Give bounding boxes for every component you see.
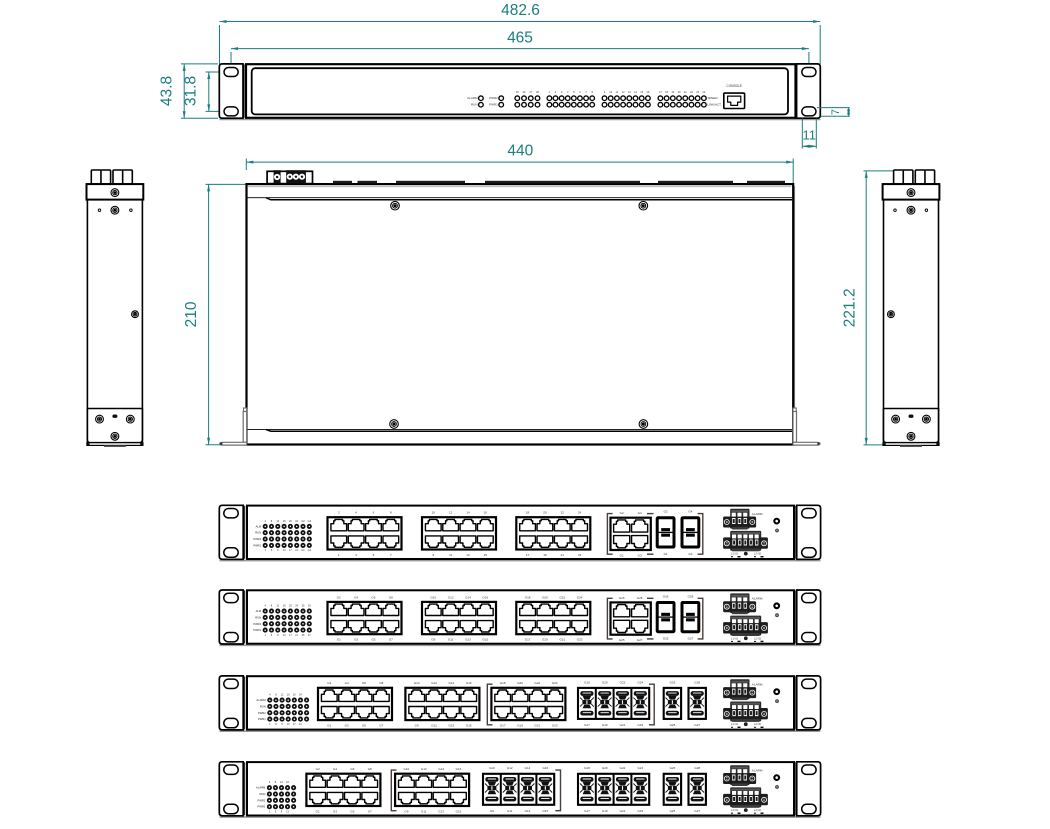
svg-text:G4: G4 [354,595,358,599]
svg-text:G17: G17 [584,723,590,727]
svg-text:G3: G3 [688,552,692,556]
svg-text:G3: G3 [308,549,312,552]
svg-text:G14: G14 [525,766,531,770]
svg-text:11: 11 [449,553,452,557]
svg-text:RUN: RUN [260,704,266,708]
svg-text:G27: G27 [694,809,700,813]
svg-text:G6: G6 [371,595,375,599]
svg-text:G13: G13 [438,809,444,813]
svg-text:PWR1: PWR1 [489,103,498,107]
svg-text:L2 N2: L2 N2 [754,636,761,640]
svg-text:24: 24 [578,511,582,515]
svg-text:RUN: RUN [255,531,261,535]
svg-text:G25: G25 [619,638,625,642]
svg-text:ALARM: ALARM [752,683,763,687]
svg-text:RUN: RUN [259,792,265,796]
svg-text:G19: G19 [602,809,608,813]
svg-text:G4: G4 [638,511,642,515]
svg-text:G20: G20 [517,681,523,685]
svg-text:10: 10 [432,511,436,515]
svg-text:G18: G18 [525,595,531,599]
svg-text:RUN: RUN [255,615,261,619]
svg-text:G5: G5 [371,638,375,642]
svg-text:G18: G18 [584,766,590,770]
svg-text:ALARM: ALARM [752,597,763,601]
svg-text:G3: G3 [345,723,349,727]
svg-text:G27: G27 [688,637,694,641]
svg-text:G10: G10 [489,766,495,770]
svg-text:43.8: 43.8 [159,76,176,106]
svg-text:G17: G17 [525,638,531,642]
svg-text:G7: G7 [379,723,383,727]
svg-text:G6: G6 [362,681,366,685]
svg-text:15: 15 [484,553,488,557]
svg-text:G22: G22 [620,766,626,770]
svg-text:G16: G16 [466,681,472,685]
svg-text:G28: G28 [688,594,694,598]
svg-text:G18: G18 [584,680,590,684]
svg-text:G19: G19 [602,723,608,727]
svg-text:G4: G4 [333,767,337,771]
svg-text:G1: G1 [620,553,624,557]
svg-text:G1: G1 [337,638,341,642]
svg-text:G28: G28 [694,766,700,770]
svg-text:G1: G1 [316,809,320,813]
svg-text:G24: G24 [577,595,583,599]
svg-text:G25: G25 [670,723,676,727]
svg-text:G26: G26 [670,680,676,684]
svg-text:482.6: 482.6 [501,2,540,19]
svg-text:G25: G25 [663,637,669,641]
svg-text:L1 N1: L1 N1 [731,808,738,812]
svg-text:G21: G21 [620,809,626,813]
svg-text:G11: G11 [448,638,454,642]
svg-text:G15: G15 [466,723,472,727]
svg-text:G16: G16 [542,766,548,770]
svg-text:G21: G21 [620,723,626,727]
svg-text:14: 14 [466,511,470,515]
svg-text:G14: G14 [449,681,455,685]
svg-text:G2: G2 [620,511,624,515]
svg-text:G22: G22 [620,680,626,684]
svg-text:G13: G13 [525,809,531,813]
svg-text:19: 19 [543,553,547,557]
svg-text:G12: G12 [507,766,513,770]
svg-text:G9: G9 [431,638,435,642]
svg-text:G17: G17 [584,809,590,813]
svg-text:G8: G8 [368,767,372,771]
svg-text:PWR2: PWR2 [253,537,261,541]
svg-text:ALARM: ALARM [256,786,266,790]
svg-text:17: 17 [526,553,530,557]
svg-text:ALARM: ALARM [467,96,478,100]
svg-text:L2 N2: L2 N2 [754,808,761,812]
svg-text:G16: G16 [456,767,462,771]
svg-text:G13: G13 [449,723,455,727]
svg-text:465: 465 [507,30,533,47]
svg-text:G5: G5 [362,723,366,727]
svg-text:G15: G15 [542,809,548,813]
svg-text:PWR2: PWR2 [489,96,498,100]
svg-text:L2 N2: L2 N2 [754,552,761,556]
svg-text:G27: G27 [694,723,700,727]
svg-text:G26: G26 [619,596,625,600]
svg-text:PWR1: PWR1 [258,717,266,721]
svg-text:G15: G15 [456,809,462,813]
svg-text:G2: G2 [337,595,341,599]
svg-text:G7: G7 [368,809,372,813]
svg-text:G13: G13 [465,638,471,642]
svg-text:G2: G2 [664,510,668,514]
svg-text:G7: G7 [389,638,393,642]
svg-text:G26: G26 [670,766,676,770]
svg-text:G3: G3 [354,638,358,642]
svg-text:L1 N1: L1 N1 [731,636,738,640]
svg-text:G19: G19 [517,723,523,727]
svg-text:G2: G2 [327,681,331,685]
svg-text:SPEED: SPEED [708,96,719,100]
svg-text:23: 23 [578,553,582,557]
svg-text:G4: G4 [688,510,692,514]
svg-text:G23: G23 [577,638,583,642]
svg-text:G25: G25 [670,809,676,813]
svg-text:G20: G20 [602,766,608,770]
svg-text:11: 11 [803,128,817,143]
svg-text:G11: G11 [431,723,437,727]
svg-text:G8: G8 [389,595,393,599]
svg-text:G14: G14 [465,595,471,599]
svg-text:G22: G22 [535,681,541,685]
svg-text:G3: G3 [333,809,337,813]
svg-text:31.8: 31.8 [183,76,200,106]
svg-text:ALARM: ALARM [752,512,763,516]
svg-text:G14: G14 [438,767,444,771]
svg-text:G12: G12 [431,681,437,685]
svg-text:ALM: ALM [256,609,262,613]
svg-text:PWR2: PWR2 [258,798,266,802]
svg-text:G2: G2 [316,767,320,771]
svg-text:G15: G15 [482,638,488,642]
svg-text:G24: G24 [637,680,643,684]
svg-text:LINK/ACT: LINK/ACT [708,103,722,107]
svg-text:G12: G12 [421,767,427,771]
svg-text:G8: G8 [379,681,383,685]
svg-text:20: 20 [543,511,547,515]
svg-text:L1 N1: L1 N1 [731,552,738,556]
svg-text:PWR2: PWR2 [253,622,261,626]
svg-text:210: 210 [183,301,200,327]
svg-text:18: 18 [526,511,530,515]
svg-text:PWR1: PWR1 [258,805,266,809]
svg-text:G16: G16 [482,595,488,599]
svg-text:G12: G12 [448,595,454,599]
svg-text:G21: G21 [559,638,565,642]
svg-text:G6: G6 [350,767,354,771]
svg-text:PWR1: PWR1 [253,543,261,547]
svg-text:PWR2: PWR2 [258,711,266,715]
svg-text:G28: G28 [637,596,643,600]
svg-text:G10: G10 [404,767,410,771]
svg-text:G28: G28 [694,680,700,684]
svg-text:G9: G9 [404,809,408,813]
svg-text:G20: G20 [542,595,548,599]
svg-text:G3: G3 [638,553,642,557]
svg-text:13: 13 [466,553,470,557]
svg-text:G17: G17 [500,723,506,727]
svg-text:7: 7 [830,109,842,115]
svg-text:L1 N1: L1 N1 [731,722,738,726]
svg-text:CONSOLE: CONSOLE [726,84,742,88]
svg-text:ALARM: ALARM [256,698,266,702]
svg-text:L2 N2: L2 N2 [754,722,761,726]
svg-text:G4: G4 [345,681,349,685]
svg-text:RUN: RUN [471,103,478,107]
svg-text:440: 440 [507,142,533,159]
svg-text:G21: G21 [535,723,541,727]
svg-text:G11: G11 [507,809,513,813]
svg-text:G23: G23 [637,809,643,813]
svg-text:G27: G27 [637,638,643,642]
svg-text:G23: G23 [637,723,643,727]
svg-text:22: 22 [561,511,565,515]
svg-text:ALARM: ALARM [752,768,763,772]
svg-text:16: 16 [484,511,488,515]
svg-text:G22: G22 [559,595,565,599]
svg-text:G26: G26 [663,594,669,598]
svg-text:ALM: ALM [256,524,262,528]
svg-text:21: 21 [561,553,565,557]
svg-text:G10: G10 [430,595,436,599]
svg-text:PWR1: PWR1 [253,628,261,632]
svg-text:G4: G4 [308,520,312,523]
svg-text:221.2: 221.2 [842,288,859,327]
svg-text:G24: G24 [552,681,558,685]
svg-text:G9: G9 [490,809,494,813]
svg-text:G11: G11 [421,809,427,813]
svg-text:G18: G18 [500,681,506,685]
svg-text:G1: G1 [327,723,331,727]
svg-text:G1: G1 [664,552,668,556]
svg-text:G9: G9 [415,723,419,727]
svg-text:12: 12 [449,511,453,515]
svg-text:G5: G5 [350,809,354,813]
svg-text:G24: G24 [637,766,643,770]
svg-text:G10: G10 [414,681,420,685]
svg-text:G19: G19 [542,638,548,642]
svg-text:G23: G23 [552,723,558,727]
svg-text:G20: G20 [602,680,608,684]
